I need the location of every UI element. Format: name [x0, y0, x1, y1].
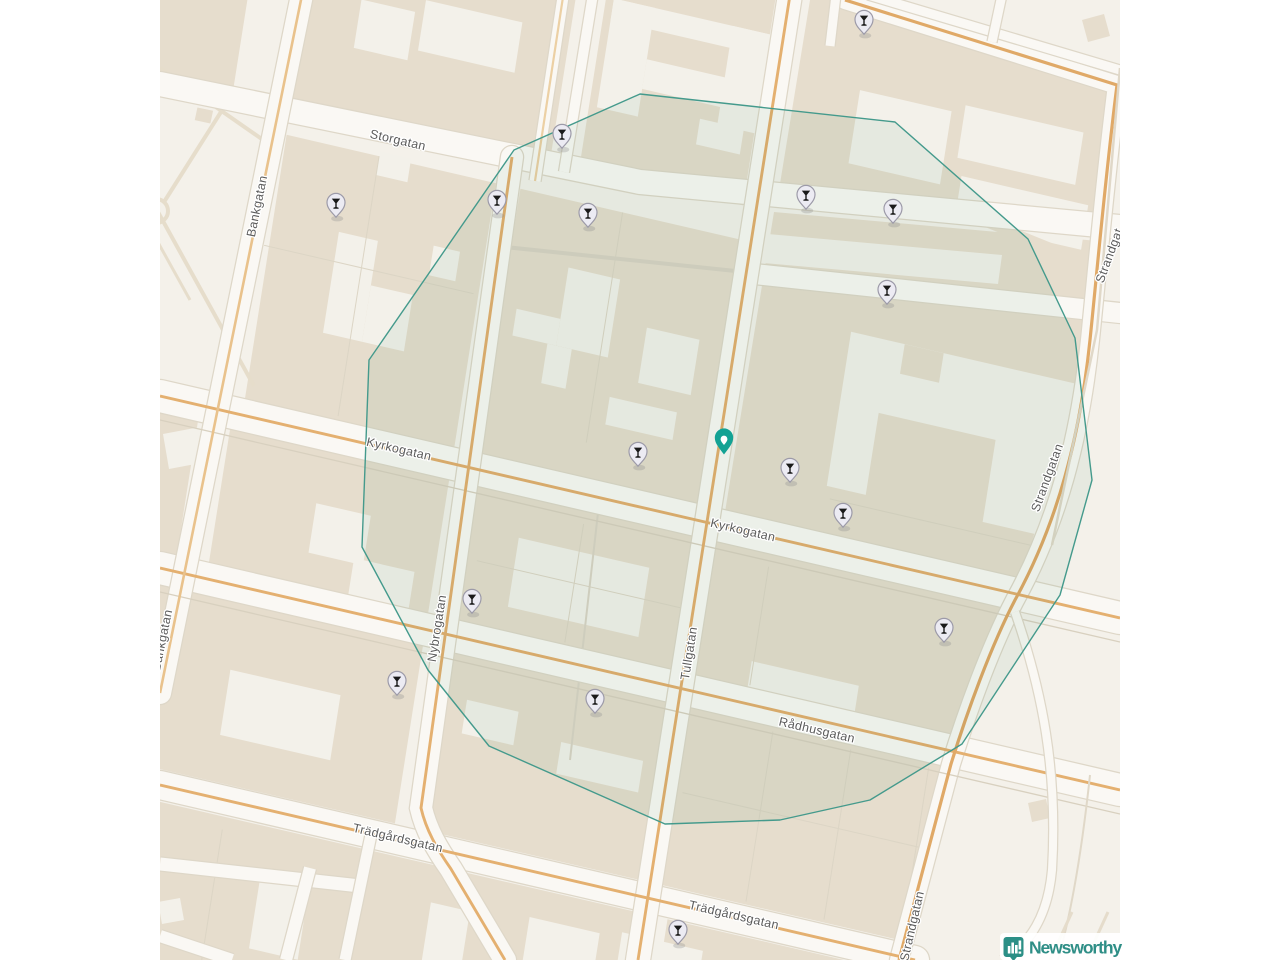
svg-text:Newsworthy: Newsworthy	[1029, 938, 1122, 958]
